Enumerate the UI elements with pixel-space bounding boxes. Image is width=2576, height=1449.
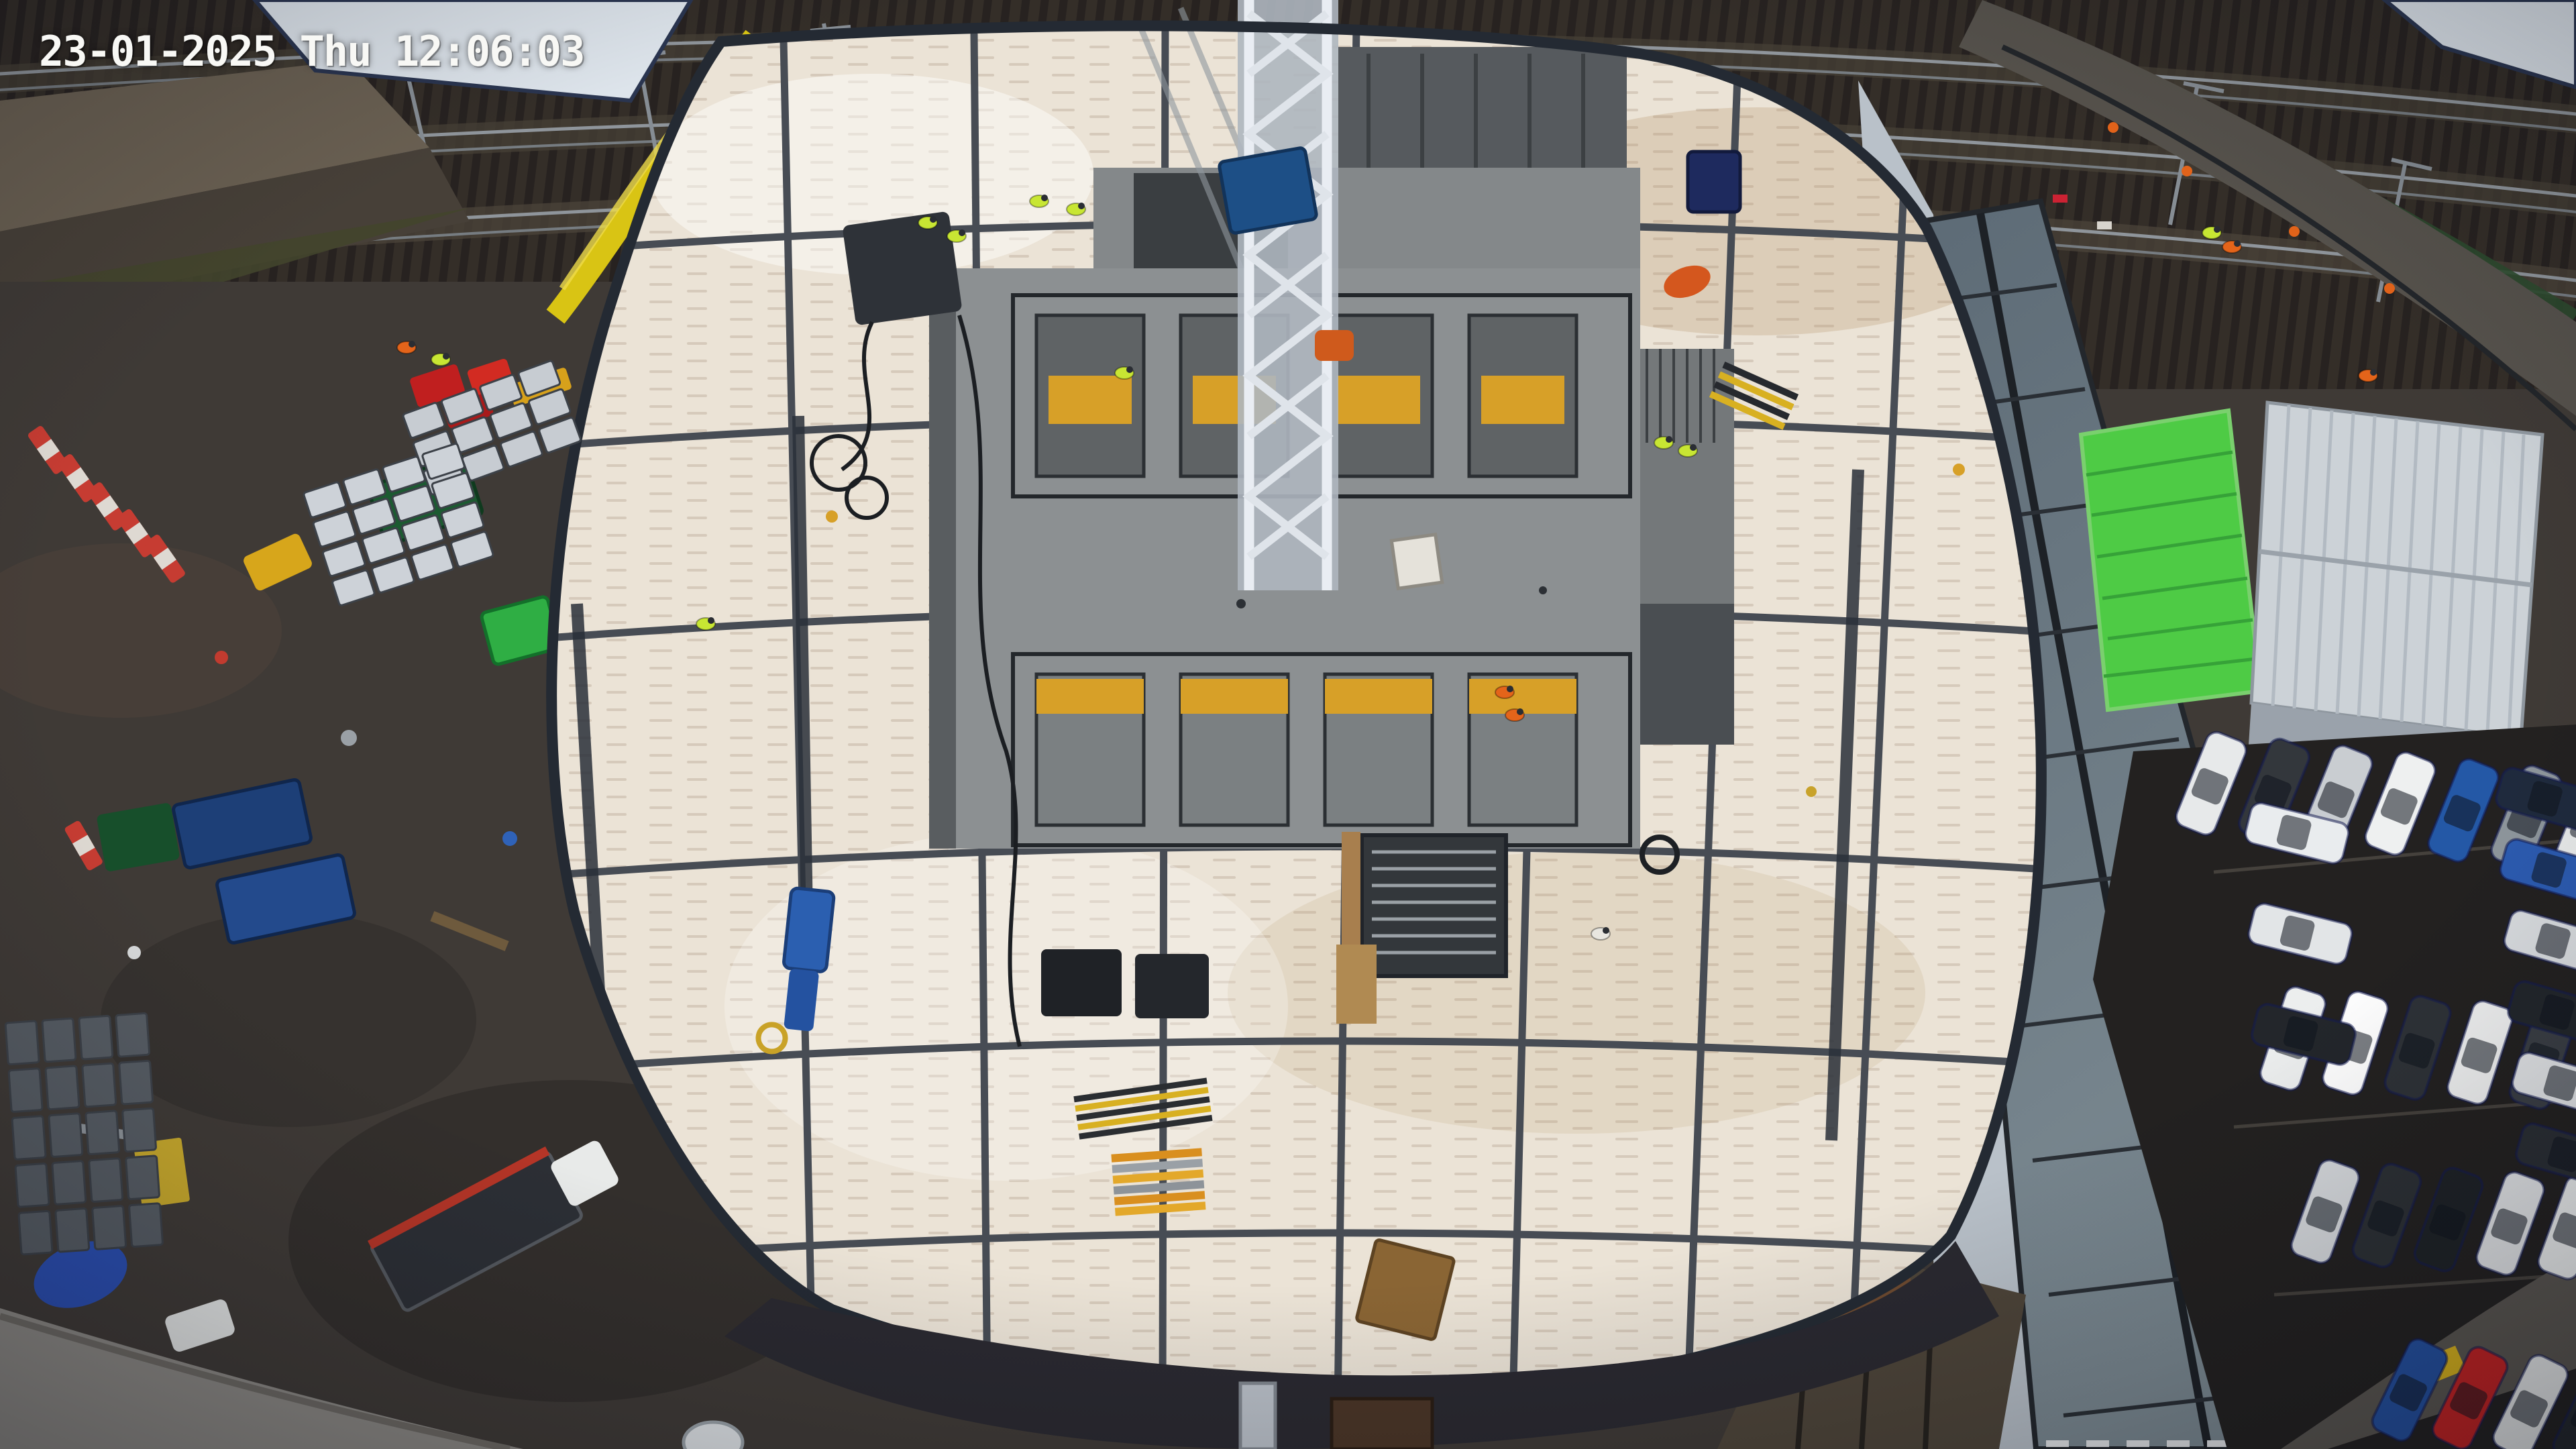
black-box-1 — [1041, 949, 1122, 1016]
worker-hivis_yellow — [918, 216, 937, 229]
worker-hivis_yellow — [1030, 195, 1049, 207]
worker-hivis_yellow — [1654, 436, 1673, 449]
scene-canvas — [0, 0, 2576, 1449]
timestamp-overlay: 23-01-2025 Thu 12:06:03 — [39, 27, 584, 76]
worker-hivis_yellow — [2202, 226, 2221, 239]
orange-tub — [1315, 330, 1354, 361]
worker-hivis_yellow — [947, 229, 966, 242]
site-cabins — [2249, 402, 2542, 781]
worker-hivis_yellow — [696, 617, 715, 630]
deck-dirt-patch-2 — [1228, 852, 1925, 1134]
building-under-construction — [551, 0, 2046, 1409]
satellite-dish — [684, 1422, 743, 1449]
hoist-tower — [1240, 1383, 1275, 1449]
worker-safety_orange — [397, 341, 416, 354]
white-frame — [1391, 535, 1442, 588]
cctv-frame: 23-01-2025 Thu 12:06:03 — [0, 0, 2576, 1449]
worker-hivis_yellow — [431, 353, 450, 366]
worker-hivis_yellow — [1678, 444, 1697, 457]
green-roof-compound — [2081, 411, 2261, 710]
worker-hivis_yellow — [1067, 203, 1085, 215]
worker-safety_orange — [1505, 708, 1524, 721]
worker-safety_orange — [2222, 240, 2241, 253]
winch-unit — [842, 211, 962, 326]
blue-unit — [1219, 148, 1318, 234]
black-box-2 — [1135, 954, 1209, 1018]
worker-white_suit — [1591, 927, 1610, 940]
worker-safety_orange — [2359, 369, 2377, 382]
navy-crate — [1688, 152, 1740, 212]
dark-shelter — [1332, 1399, 1432, 1449]
worker-safety_orange — [1495, 686, 1514, 698]
worker-hivis_yellow — [1115, 366, 1134, 379]
